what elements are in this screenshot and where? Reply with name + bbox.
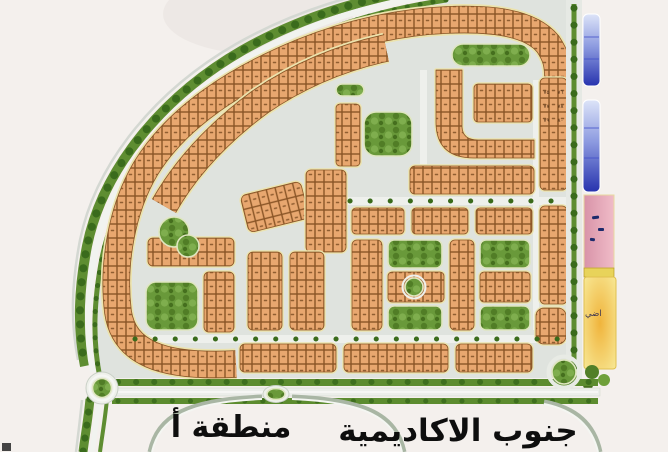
plot-number: ٧٩ <box>544 118 550 124</box>
plot-block <box>536 308 566 344</box>
master-plan-map: ٧٥ ٧٦ ٧٧ ٧٨ ٧٩ ٨٠ <box>0 0 668 452</box>
corner-mark <box>2 443 11 451</box>
roundabout <box>86 372 118 404</box>
park <box>177 235 199 257</box>
plot-block <box>352 240 382 330</box>
park <box>452 44 530 66</box>
plot-number: ٧٦ <box>558 90 564 96</box>
park <box>388 306 442 330</box>
blue-strip-south <box>583 100 600 192</box>
plot-block <box>352 208 404 234</box>
right-road <box>566 0 582 382</box>
plot-number: ٧٨ <box>558 104 564 110</box>
park <box>388 240 442 268</box>
plot-block <box>480 272 530 302</box>
yellow-zone-label: اضي <box>585 309 602 319</box>
plot-block <box>336 104 360 166</box>
park-circle <box>405 278 423 296</box>
yellow-zone <box>584 277 616 369</box>
bottom-boulevard <box>112 379 600 404</box>
park <box>480 240 530 268</box>
blue-strip-north <box>583 14 600 86</box>
plot-block <box>474 84 532 122</box>
plot-block <box>290 252 324 330</box>
park <box>480 306 530 330</box>
plot-block <box>540 206 567 304</box>
area-label: منطقة أ <box>171 407 292 445</box>
plot-block <box>476 208 532 234</box>
strip-divider <box>584 268 614 277</box>
plot-block <box>456 344 532 372</box>
plot-block <box>204 272 234 332</box>
district-label: جنوب الاكاديمية <box>338 413 578 449</box>
plot-block <box>240 344 336 372</box>
roundabout <box>549 357 580 388</box>
plot-block <box>306 170 346 252</box>
park <box>364 112 412 156</box>
park <box>146 282 198 330</box>
plot-number: ٨٠ <box>558 118 564 124</box>
park <box>336 84 364 96</box>
master-plan-screenshot: ٧٥ ٧٦ ٧٧ ٧٨ ٧٩ ٨٠ <box>0 0 668 452</box>
plot-block <box>248 252 282 330</box>
plot-block <box>450 240 474 330</box>
plot-block <box>410 166 534 194</box>
pink-zone <box>584 195 614 268</box>
plot-number: ٧٧ <box>544 104 550 110</box>
plot-number: ٧٥ <box>544 90 550 96</box>
plot-block <box>412 208 468 234</box>
plot-block <box>344 344 448 372</box>
roundabout <box>263 386 289 403</box>
